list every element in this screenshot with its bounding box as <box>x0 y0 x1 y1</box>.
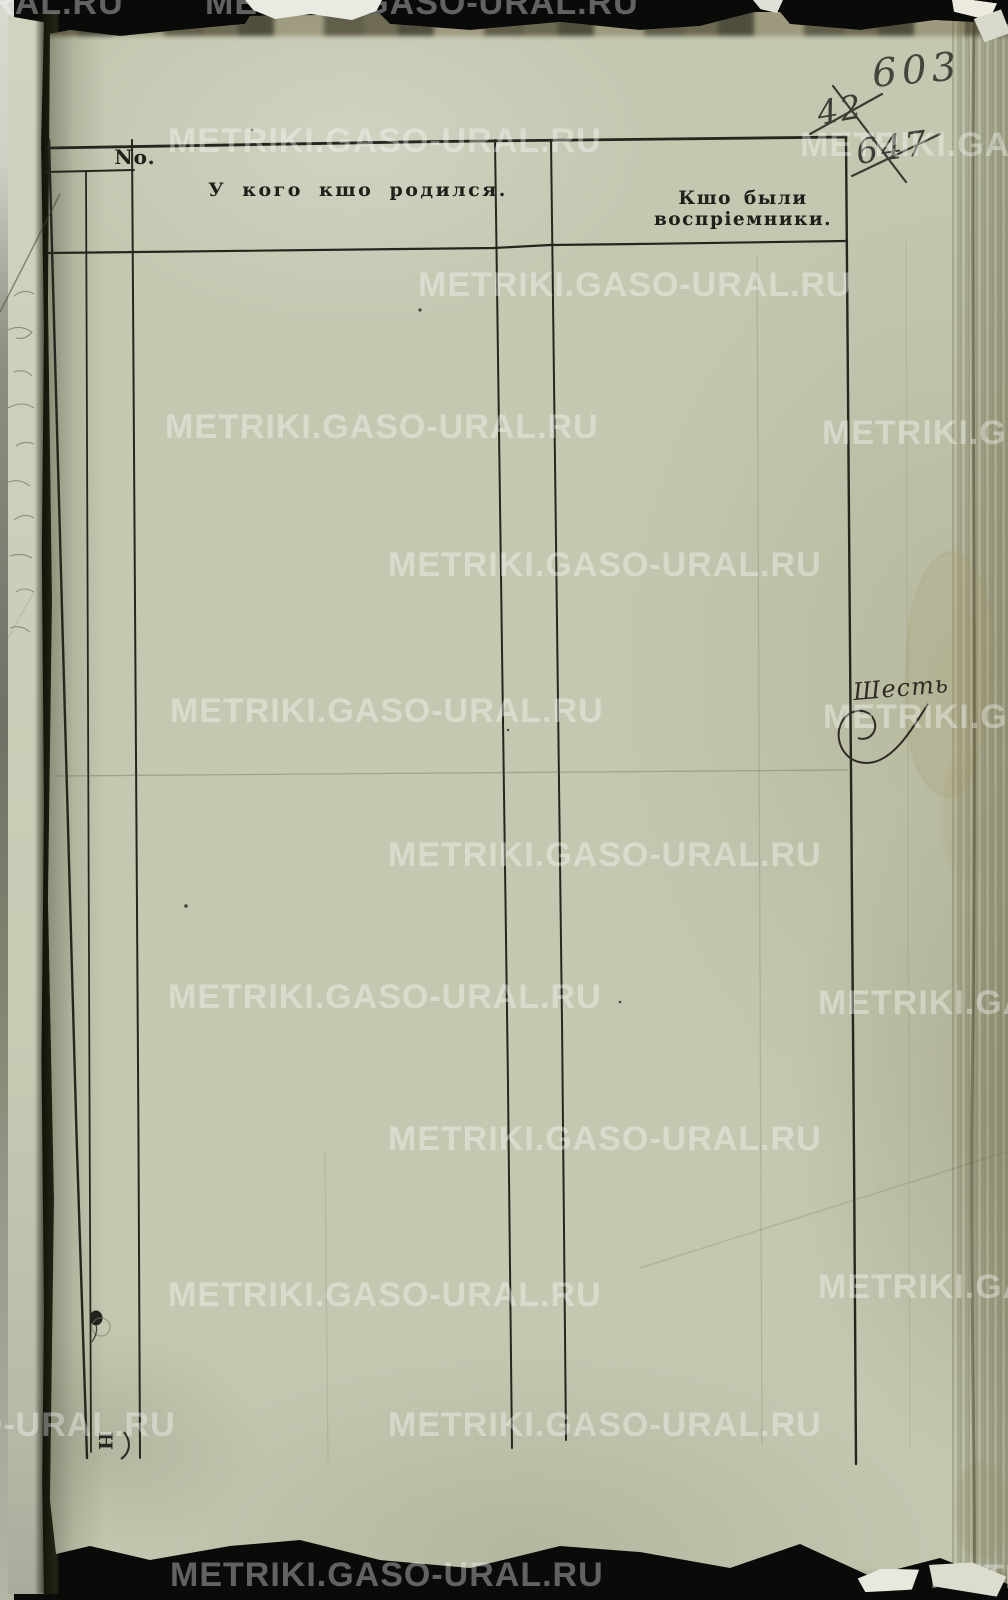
header-godparents: Кшо были воспріемники. <box>596 188 890 230</box>
watermark-text: METRIKI.GASO-URAL.RU <box>168 978 602 1017</box>
watermark-text: METRIKI.GASO-URAL.RU <box>165 408 599 447</box>
watermark-text: METRIKI.GASO-URAL.RU <box>388 836 822 875</box>
water-stain <box>956 1462 1006 1558</box>
handwritten-page-number: 603 <box>870 44 963 97</box>
watermark-text: METRIKI.GASO-URAL.RU <box>388 546 822 585</box>
watermark-text: METRIKI.GASO-URAL.RU <box>170 1556 604 1595</box>
watermark-text: METRIKI.GASO-URAL.RU <box>818 984 1008 1023</box>
watermark-text: METRIKI.GASO-URAL.RU <box>822 414 1008 453</box>
water-stain <box>942 752 994 880</box>
watermark-text: METRIKI.GASO-URAL.RU <box>388 1406 822 1445</box>
paper-sheet <box>44 0 1008 1600</box>
scanned-document-page: No. Мужеска пола. Женска пола. У кого кш… <box>0 0 1008 1600</box>
watermark-text: METRIKI.GASO-URAL.RU <box>818 1268 1008 1307</box>
header-no: No. <box>92 145 178 169</box>
watermark-text: METRIKI.GASO-URAL.RU <box>418 266 852 305</box>
watermark-text: METRIKI.GASO-URAL.RU <box>800 126 1008 165</box>
watermark-text: METRIKI.GASO-URAL.RU <box>388 1120 822 1159</box>
watermark-text: METRIKI.GASO-URAL.RU <box>168 122 602 161</box>
paper-texture <box>44 0 1008 1600</box>
watermark-text: METRIKI.GASO-URAL.RU <box>0 0 124 23</box>
watermark-text: METRIKI.GASO-URAL.RU <box>170 692 604 731</box>
header-who-was-born: У кого кшо родился. <box>179 179 537 201</box>
paper-scrap <box>753 0 783 13</box>
watermark-text: METRIKI.GASO-URAL.RU <box>168 1276 602 1315</box>
watermark-text: METRIKI.GASO-URAL.RU <box>0 1406 176 1445</box>
watermark-text: METRIKI.GASO-URAL.RU <box>823 698 1008 737</box>
